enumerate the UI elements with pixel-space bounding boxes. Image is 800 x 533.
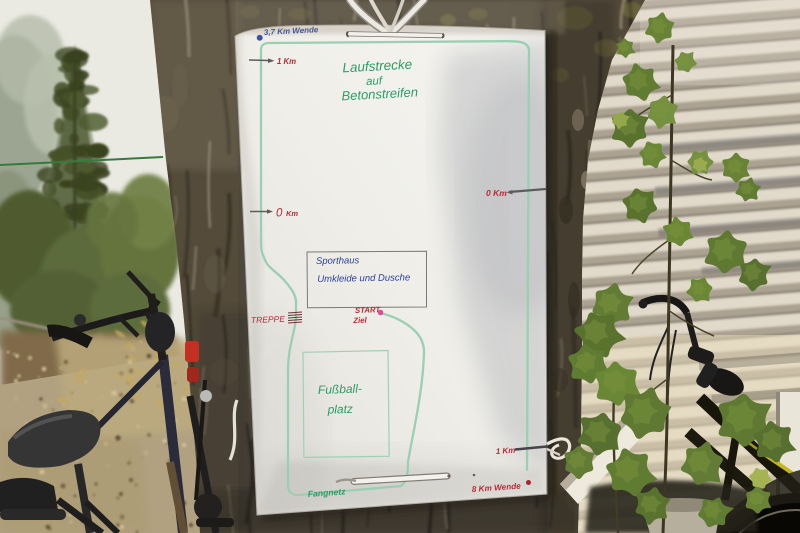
svg-text:platz: platz bbox=[326, 402, 353, 417]
svg-text:0 Km: 0 Km bbox=[486, 188, 507, 198]
svg-text:START: START bbox=[355, 305, 382, 315]
svg-text:Sporthaus: Sporthaus bbox=[316, 255, 360, 267]
svg-text:1 Km: 1 Km bbox=[277, 57, 296, 66]
svg-text:Km: Km bbox=[286, 209, 298, 218]
svg-text:TREPPE: TREPPE bbox=[251, 314, 286, 325]
svg-text:1 Km: 1 Km bbox=[496, 446, 516, 456]
svg-text:Umkleide und Dusche: Umkleide und Dusche bbox=[317, 272, 410, 285]
svg-text:0: 0 bbox=[276, 208, 283, 220]
svg-text:Ziel: Ziel bbox=[352, 316, 368, 326]
svg-text:Fußball-: Fußball- bbox=[318, 381, 362, 397]
